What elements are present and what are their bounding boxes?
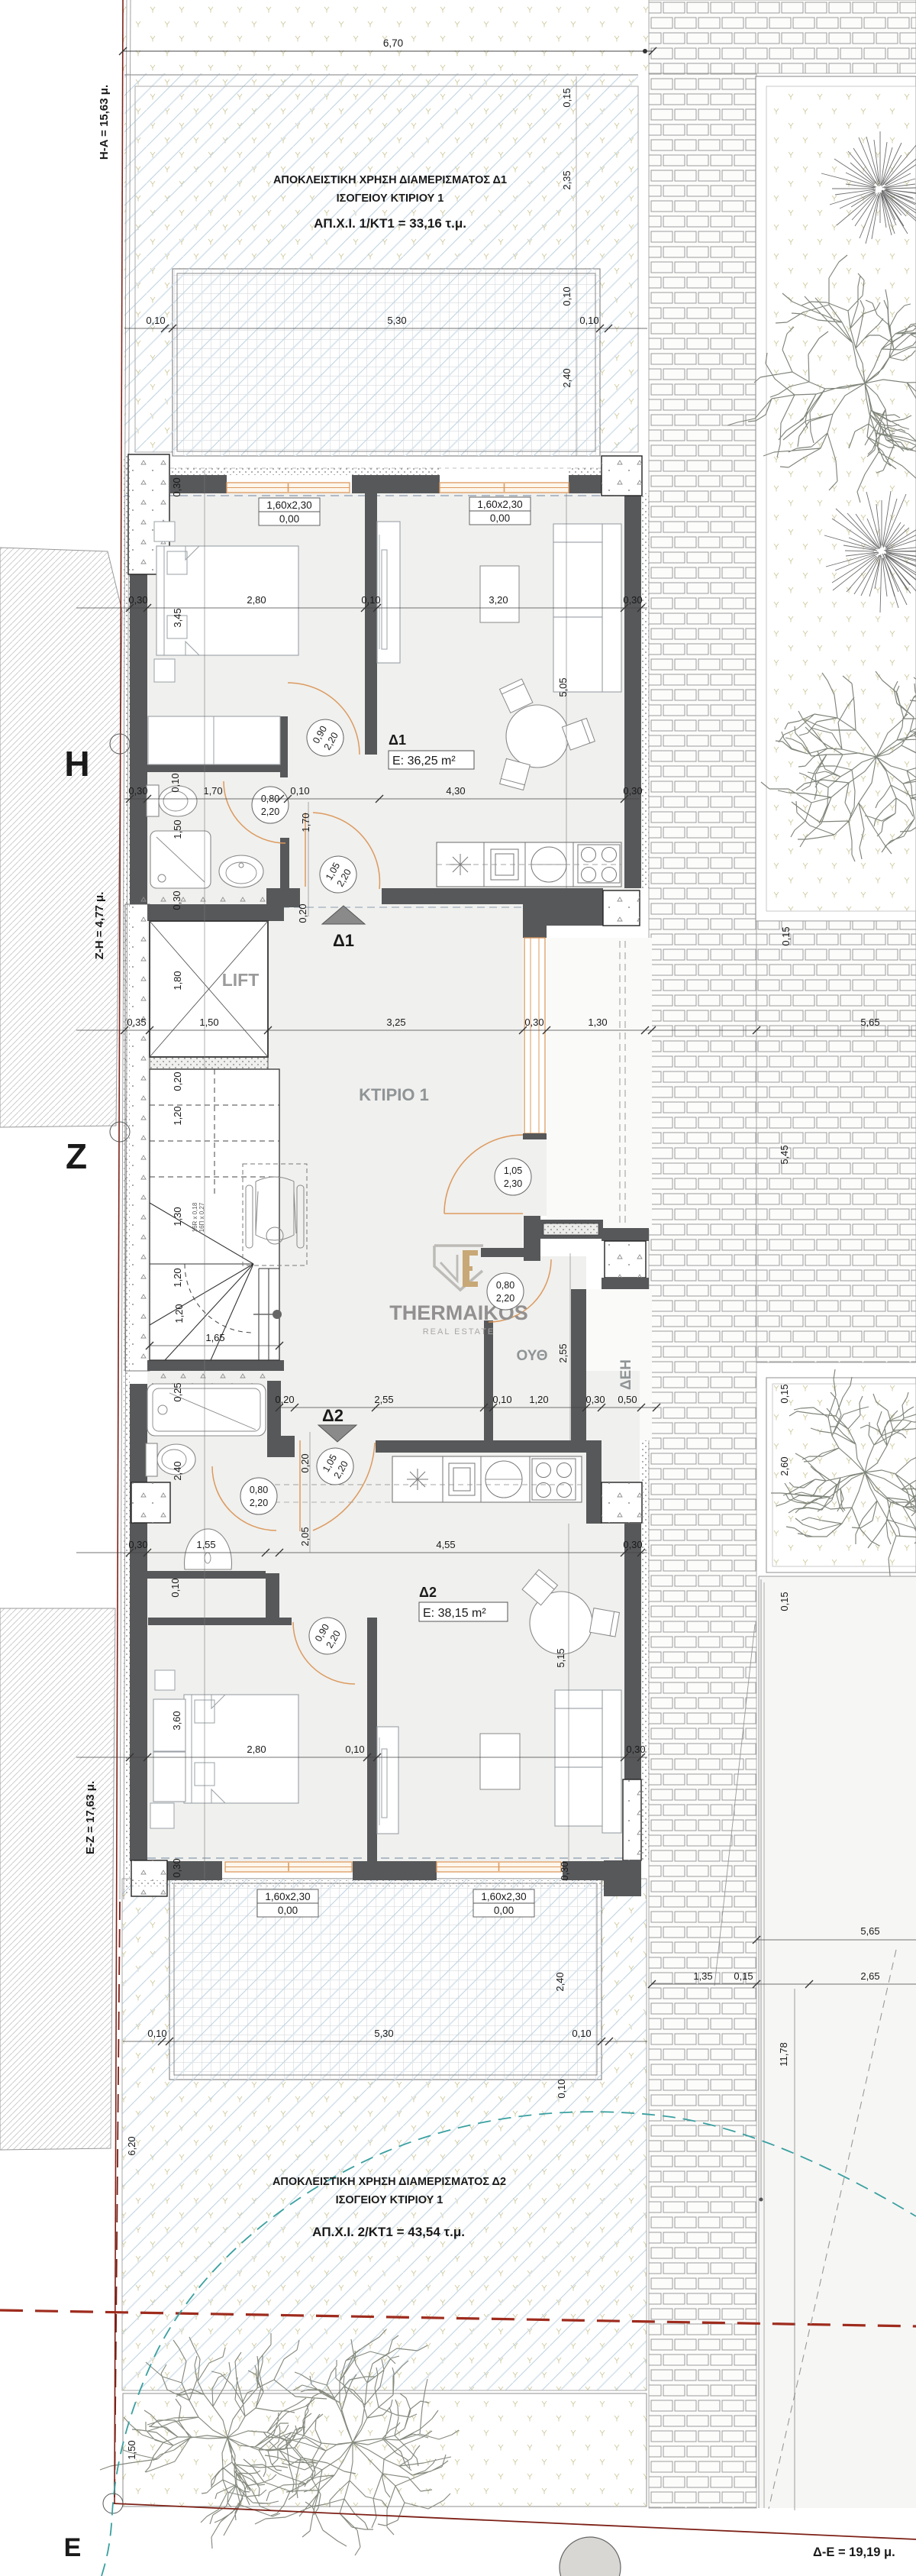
svg-text:11,78: 11,78 (778, 2042, 789, 2067)
svg-text:0,10: 0,10 (561, 286, 572, 305)
svg-text:16Π x 0,27: 16Π x 0,27 (198, 1202, 205, 1232)
svg-text:0,25: 0,25 (172, 1382, 183, 1401)
svg-text:5,45: 5,45 (779, 1145, 790, 1164)
svg-text:Δ2: Δ2 (322, 1406, 343, 1425)
svg-text:ΟΥΘ: ΟΥΘ (517, 1348, 548, 1364)
svg-text:0,20: 0,20 (297, 903, 308, 923)
svg-text:0,30: 0,30 (128, 594, 147, 606)
svg-text:4,30: 4,30 (446, 785, 465, 797)
svg-text:Δ2: Δ2 (419, 1585, 437, 1600)
svg-text:2,80: 2,80 (247, 1744, 266, 1755)
svg-text:3,25: 3,25 (386, 1017, 405, 1028)
svg-text:E: 36,25 m²: E: 36,25 m² (392, 755, 456, 768)
svg-text:2,05: 2,05 (299, 1527, 311, 1546)
svg-text:E-Z = 17,63 μ.: E-Z = 17,63 μ. (84, 1781, 97, 1854)
svg-text:0,50: 0,50 (618, 1394, 637, 1405)
svg-text:Z-H = 4,77 μ.: Z-H = 4,77 μ. (93, 892, 106, 960)
svg-text:ΙΣΟΓΕΙΟΥ ΚΤΙΡΙΟΥ 1: ΙΣΟΓΕΙΟΥ ΚΤΙΡΙΟΥ 1 (336, 2194, 443, 2206)
svg-text:0,00: 0,00 (279, 513, 299, 525)
svg-text:16R x 0,18: 16R x 0,18 (192, 1202, 198, 1232)
svg-text:Δ1: Δ1 (389, 732, 406, 748)
svg-text:1,20: 1,20 (172, 1268, 183, 1287)
svg-text:ΙΣΟΓΕΙΟΥ ΚΤΙΡΙΟΥ 1: ΙΣΟΓΕΙΟΥ ΚΤΙΡΙΟΥ 1 (337, 192, 444, 205)
svg-text:2,55: 2,55 (374, 1394, 393, 1405)
svg-text:0,30: 0,30 (626, 1744, 645, 1755)
svg-text:2,20: 2,20 (496, 1293, 514, 1304)
svg-text:0,00: 0,00 (494, 1905, 514, 1916)
svg-text:2,65: 2,65 (860, 1970, 879, 1982)
svg-text:0,30: 0,30 (128, 785, 147, 797)
svg-text:2,55: 2,55 (557, 1343, 569, 1362)
svg-text:1,65: 1,65 (205, 1332, 224, 1343)
svg-text:0,30: 0,30 (623, 1539, 642, 1550)
svg-text:0,10: 0,10 (492, 1394, 511, 1405)
svg-text:5,15: 5,15 (555, 1648, 566, 1667)
svg-text:0,15: 0,15 (779, 1384, 790, 1403)
svg-text:0,30: 0,30 (128, 1539, 147, 1550)
svg-text:1,70: 1,70 (203, 785, 222, 797)
svg-text:2,40: 2,40 (172, 1461, 183, 1480)
svg-text:2,40: 2,40 (561, 368, 572, 387)
svg-text:ΑΠ.Χ.Ι. 2/ΚΤ1 = 43,54 τ.μ.: ΑΠ.Χ.Ι. 2/ΚΤ1 = 43,54 τ.μ. (312, 2225, 465, 2239)
svg-text:0,80: 0,80 (250, 1485, 268, 1495)
svg-text:1,60x2,30: 1,60x2,30 (481, 1891, 526, 1902)
svg-text:0,20: 0,20 (299, 1453, 311, 1472)
svg-text:2,40: 2,40 (554, 1972, 566, 1991)
svg-text:0,30: 0,30 (623, 785, 642, 797)
svg-text:2,35: 2,35 (561, 170, 572, 189)
svg-text:1,80: 1,80 (172, 971, 183, 990)
svg-text:1,70: 1,70 (300, 813, 311, 832)
svg-text:0,10: 0,10 (579, 315, 598, 326)
svg-text:5,30: 5,30 (374, 2028, 393, 2039)
svg-text:H-A = 15,63 μ.: H-A = 15,63 μ. (98, 85, 111, 160)
svg-text:E: E (64, 2533, 82, 2562)
svg-text:ΚΤΙΡΙΟ 1: ΚΤΙΡΙΟ 1 (359, 1085, 429, 1104)
svg-text:5,65: 5,65 (860, 1017, 879, 1028)
svg-text:0,10: 0,10 (169, 773, 181, 792)
svg-text:0,00: 0,00 (278, 1905, 298, 1916)
svg-text:ΑΠ.Χ.Ι. 1/ΚΤ1 = 33,16 τ.μ.: ΑΠ.Χ.Ι. 1/ΚΤ1 = 33,16 τ.μ. (314, 216, 466, 231)
svg-text:1,20: 1,20 (173, 1304, 185, 1323)
svg-text:ΔΕΗ: ΔΕΗ (618, 1359, 634, 1390)
svg-text:Η: Η (64, 744, 89, 784)
svg-text:0,10: 0,10 (361, 594, 380, 606)
svg-text:1,30: 1,30 (588, 1017, 607, 1028)
svg-text:0,35: 0,35 (127, 1017, 146, 1028)
svg-text:1,60x2,30: 1,60x2,30 (265, 1891, 310, 1902)
svg-text:0,10: 0,10 (572, 2028, 591, 2039)
svg-text:1,60x2,30: 1,60x2,30 (266, 499, 311, 511)
svg-text:0,30: 0,30 (623, 594, 642, 606)
svg-text:0,20: 0,20 (275, 1394, 294, 1405)
svg-text:6,20: 6,20 (126, 2136, 137, 2155)
svg-text:0,10: 0,10 (146, 315, 165, 326)
svg-text:5,05: 5,05 (557, 677, 569, 697)
svg-text:2,60: 2,60 (779, 1456, 790, 1475)
svg-text:Δ1: Δ1 (333, 931, 354, 950)
svg-text:Δ-Ε = 19,19 μ.: Δ-Ε = 19,19 μ. (813, 2545, 895, 2559)
svg-text:3,20: 3,20 (489, 594, 508, 606)
svg-text:2,80: 2,80 (247, 594, 266, 606)
svg-text:0,15: 0,15 (734, 1970, 753, 1982)
svg-text:0,10: 0,10 (147, 2028, 166, 2039)
svg-text:3,60: 3,60 (171, 1711, 182, 1730)
svg-text:0,30: 0,30 (559, 1861, 570, 1880)
svg-text:0,00: 0,00 (490, 512, 510, 524)
svg-text:1,20: 1,20 (172, 1106, 183, 1125)
svg-text:1,05: 1,05 (504, 1165, 522, 1176)
svg-text:0,15: 0,15 (780, 926, 792, 945)
svg-text:1,50: 1,50 (199, 1017, 218, 1028)
svg-text:6,70: 6,70 (383, 37, 403, 49)
svg-text:5,30: 5,30 (387, 315, 406, 326)
svg-text:1,35: 1,35 (693, 1970, 712, 1982)
svg-text:0,30: 0,30 (524, 1017, 543, 1028)
svg-text:E: 38,15 m²: E: 38,15 m² (423, 1607, 486, 1620)
svg-text:1,50: 1,50 (172, 819, 183, 839)
svg-text:ΑΠΟΚΛΕΙΣΤΙΚΗ ΧΡΗΣΗ ΔΙΑΜΕΡΙΣΜΑΤ: ΑΠΟΚΛΕΙΣΤΙΚΗ ΧΡΗΣΗ ΔΙΑΜΕΡΙΣΜΑΤΟΣ Δ1 (273, 174, 507, 186)
svg-text:1,55: 1,55 (196, 1539, 215, 1550)
svg-text:2,20: 2,20 (261, 806, 279, 817)
svg-text:1,20: 1,20 (529, 1394, 548, 1405)
svg-text:0,30: 0,30 (171, 890, 182, 910)
svg-text:5,65: 5,65 (860, 1925, 879, 1937)
svg-text:REAL ESTATE: REAL ESTATE (423, 1327, 495, 1336)
svg-text:4,55: 4,55 (436, 1539, 455, 1550)
svg-text:1,60x2,30: 1,60x2,30 (477, 499, 522, 510)
svg-text:3,45: 3,45 (172, 608, 183, 627)
svg-text:0,10: 0,10 (345, 1744, 364, 1755)
svg-text:0,10: 0,10 (556, 2079, 567, 2098)
svg-text:0,30: 0,30 (171, 1858, 182, 1877)
svg-text:0,15: 0,15 (561, 88, 572, 107)
svg-text:ΑΠΟΚΛΕΙΣΤΙΚΗ ΧΡΗΣΗ ΔΙΑΜΕΡΙΣΜΑΤ: ΑΠΟΚΛΕΙΣΤΙΚΗ ΧΡΗΣΗ ΔΙΑΜΕΡΙΣΜΑΤΟΣ Δ2 (273, 2176, 506, 2188)
svg-text:0,20: 0,20 (172, 1071, 183, 1091)
svg-text:2,30: 2,30 (504, 1178, 522, 1189)
svg-text:0,10: 0,10 (169, 1578, 181, 1597)
svg-text:0,30: 0,30 (585, 1394, 605, 1405)
svg-text:0,30: 0,30 (171, 477, 182, 496)
svg-text:Z: Z (66, 1136, 87, 1176)
svg-text:2,20: 2,20 (250, 1498, 268, 1508)
svg-text:1,50: 1,50 (126, 2440, 137, 2459)
svg-text:LIFT: LIFT (222, 970, 260, 990)
svg-text:0,10: 0,10 (290, 785, 309, 797)
svg-text:0,15: 0,15 (779, 1592, 790, 1611)
svg-text:1,30: 1,30 (172, 1207, 183, 1226)
svg-text:0,80: 0,80 (496, 1280, 514, 1291)
